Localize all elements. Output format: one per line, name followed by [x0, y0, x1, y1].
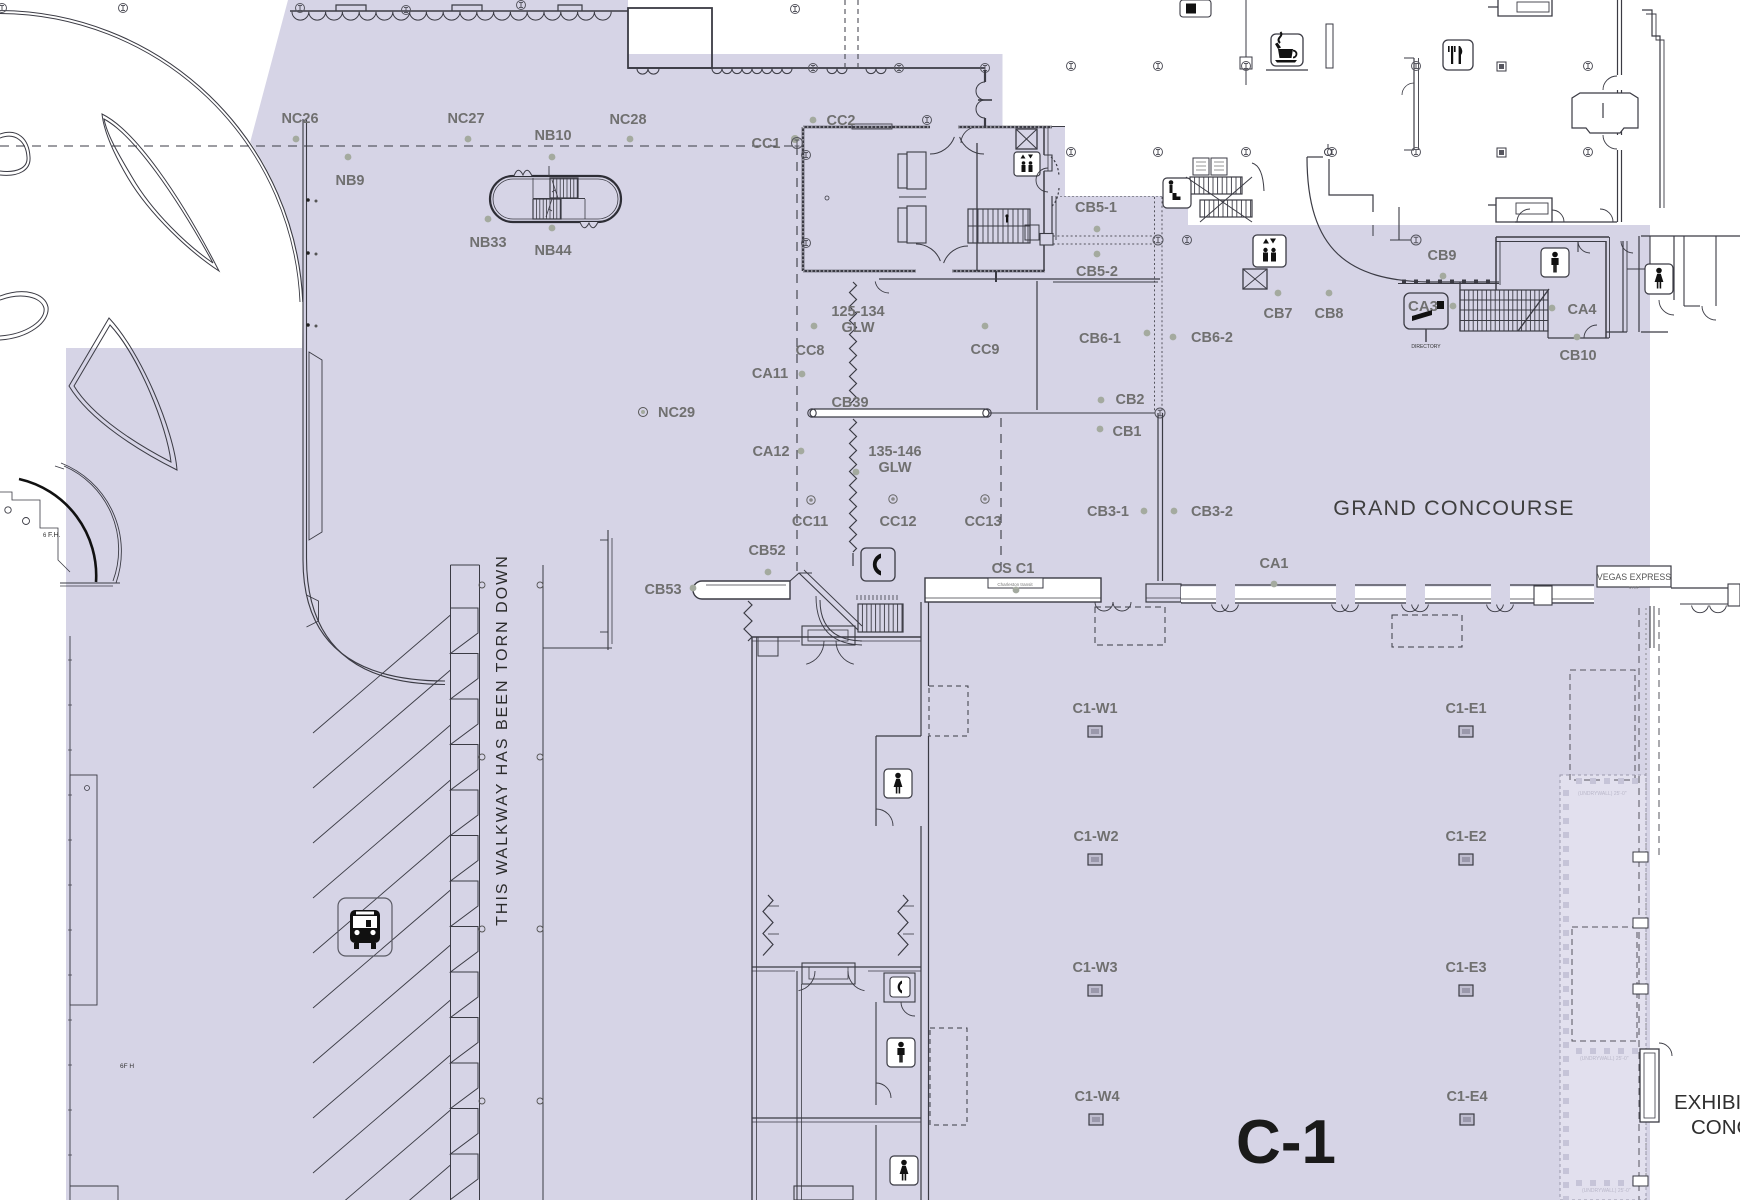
svg-text:THIS WALKWAY HAS BEEN TORN DOW: THIS WALKWAY HAS BEEN TORN DOWN	[494, 554, 511, 926]
svg-text:(UNDRYWALL) 25'-0": (UNDRYWALL) 25'-0"	[1580, 1056, 1629, 1062]
svg-text:125-134: 125-134	[831, 304, 884, 320]
svg-text:CB6-1: CB6-1	[1079, 331, 1121, 347]
svg-text:CB2: CB2	[1115, 392, 1144, 408]
svg-text:(UNDRYWALL) 25'-0": (UNDRYWALL) 25'-0"	[1582, 1188, 1631, 1194]
svg-text:CA11: CA11	[752, 366, 788, 382]
svg-text:Charleston transit: Charleston transit	[997, 582, 1033, 587]
svg-text:CB1: CB1	[1112, 424, 1141, 440]
svg-text:GLW: GLW	[878, 460, 911, 476]
svg-text:NC29: NC29	[658, 405, 695, 421]
svg-text:CB5-1: CB5-1	[1075, 200, 1117, 216]
svg-text:CS C1: CS C1	[992, 561, 1035, 577]
svg-text:CB3-1: CB3-1	[1087, 504, 1129, 520]
svg-text:CB7: CB7	[1263, 306, 1292, 322]
svg-text:CA1: CA1	[1259, 556, 1288, 572]
svg-text:CB53: CB53	[644, 582, 681, 598]
svg-text:CB3-2: CB3-2	[1191, 504, 1233, 520]
svg-text:NC26: NC26	[281, 111, 318, 127]
svg-text:C1-W4: C1-W4	[1074, 1089, 1119, 1105]
svg-text:VEGAS EXPRESS: VEGAS EXPRESS	[1597, 572, 1671, 582]
svg-text:NC28: NC28	[609, 112, 646, 128]
svg-text:NC27: NC27	[447, 111, 484, 127]
svg-text:EXHIBIT: EXHIBIT	[1674, 1091, 1740, 1114]
svg-text:CA4: CA4	[1567, 302, 1596, 318]
svg-text:CA12: CA12	[752, 444, 789, 460]
svg-text:CB8: CB8	[1314, 306, 1343, 322]
svg-text:DIRECTORY: DIRECTORY	[1411, 344, 1441, 350]
svg-text:CC9: CC9	[970, 342, 999, 358]
svg-text:F.H.: F.H.	[48, 532, 61, 539]
svg-text:CB39: CB39	[831, 395, 868, 411]
svg-text:C1-E2: C1-E2	[1445, 829, 1486, 845]
svg-text:CB9: CB9	[1427, 248, 1456, 264]
svg-text:NB33: NB33	[469, 235, 506, 251]
svg-text:CB5-2: CB5-2	[1076, 264, 1118, 280]
svg-text:CC8: CC8	[795, 343, 824, 359]
svg-text:CC2: CC2	[826, 113, 855, 129]
svg-text:CC13: CC13	[964, 514, 1001, 530]
svg-text:GRAND CONCOURSE: GRAND CONCOURSE	[1333, 496, 1574, 520]
svg-text:CA3: CA3	[1408, 298, 1438, 315]
svg-text:STOP: STOP	[1629, 585, 1640, 590]
svg-text:NB10: NB10	[534, 128, 571, 144]
svg-text:135-146: 135-146	[868, 444, 921, 460]
svg-text:C-1: C-1	[1236, 1108, 1336, 1177]
svg-text:NB44: NB44	[534, 243, 571, 259]
svg-text:C1-W1: C1-W1	[1072, 701, 1117, 717]
svg-text:C1-W2: C1-W2	[1073, 829, 1118, 845]
svg-text:GLW: GLW	[841, 320, 874, 336]
svg-text:CB52: CB52	[748, 543, 785, 559]
svg-text:6F H: 6F H	[120, 1063, 134, 1070]
svg-text:NB9: NB9	[335, 173, 364, 189]
svg-text:(UNDRYWALL) 25'-0": (UNDRYWALL) 25'-0"	[1578, 791, 1627, 797]
svg-text:CC11: CC11	[792, 514, 828, 530]
svg-text:CC12: CC12	[879, 514, 916, 530]
svg-text:CB10: CB10	[1559, 348, 1596, 364]
svg-text:C1-E4: C1-E4	[1446, 1089, 1487, 1105]
svg-text:C1-E3: C1-E3	[1445, 960, 1486, 976]
svg-text:CC1: CC1	[751, 136, 780, 152]
svg-text:C1-E1: C1-E1	[1445, 701, 1486, 717]
svg-text:CB6-2: CB6-2	[1191, 330, 1233, 346]
svg-text:CONC: CONC	[1691, 1116, 1740, 1139]
svg-text:C1-W3: C1-W3	[1072, 960, 1117, 976]
